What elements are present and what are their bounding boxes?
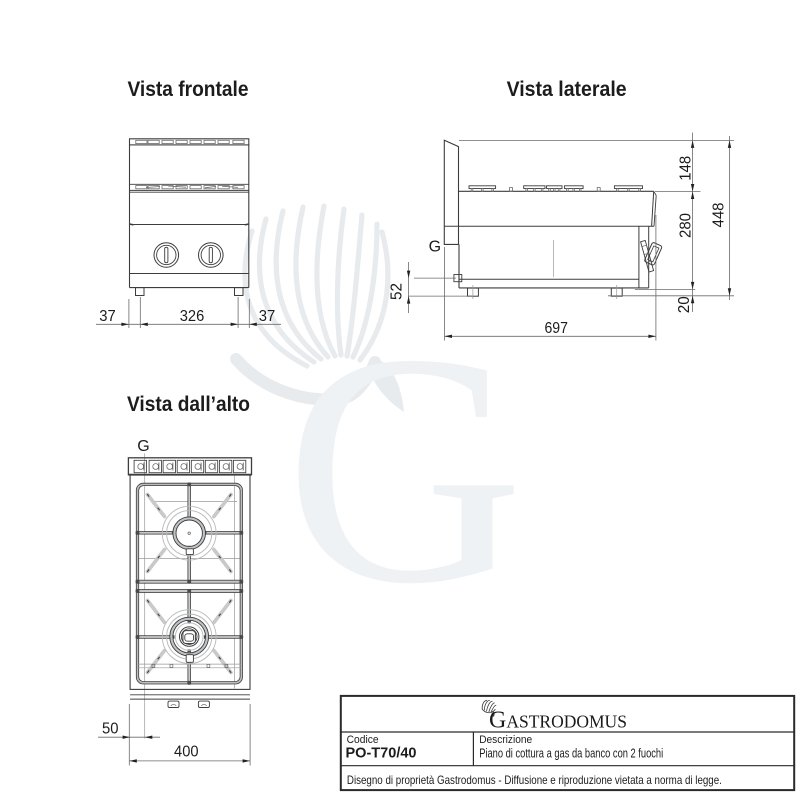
svg-text:326: 326 (180, 308, 205, 325)
svg-text:400: 400 (174, 744, 199, 761)
svg-text:Vista dall’alto: Vista dall’alto (127, 393, 250, 416)
svg-text:280: 280 (678, 213, 695, 238)
svg-text:G: G (137, 438, 149, 455)
svg-text:448: 448 (711, 202, 728, 227)
svg-text:PO-T70/40: PO-T70/40 (346, 745, 417, 762)
svg-text:52: 52 (388, 283, 405, 300)
svg-text:G: G (285, 285, 524, 652)
svg-text:148: 148 (678, 156, 695, 181)
svg-text:Vista laterale: Vista laterale (507, 78, 627, 101)
svg-text:Vista frontale: Vista frontale (128, 78, 249, 101)
svg-text:G: G (429, 239, 441, 256)
svg-text:GASTRODOMUS: GASTRODOMUS (489, 707, 627, 733)
svg-text:20: 20 (676, 296, 693, 313)
svg-text:Piano di cottura a gas da banc: Piano di cottura a gas da banco con 2 fu… (479, 747, 663, 761)
svg-text:50: 50 (102, 721, 119, 738)
svg-text:37: 37 (99, 308, 116, 325)
svg-text:Descrizione: Descrizione (479, 734, 532, 746)
svg-text:37: 37 (259, 308, 276, 325)
svg-text:697: 697 (544, 320, 568, 337)
svg-text:Disegno di proprietà Gastrodom: Disegno di proprietà Gastrodomus - Diffu… (347, 773, 722, 787)
